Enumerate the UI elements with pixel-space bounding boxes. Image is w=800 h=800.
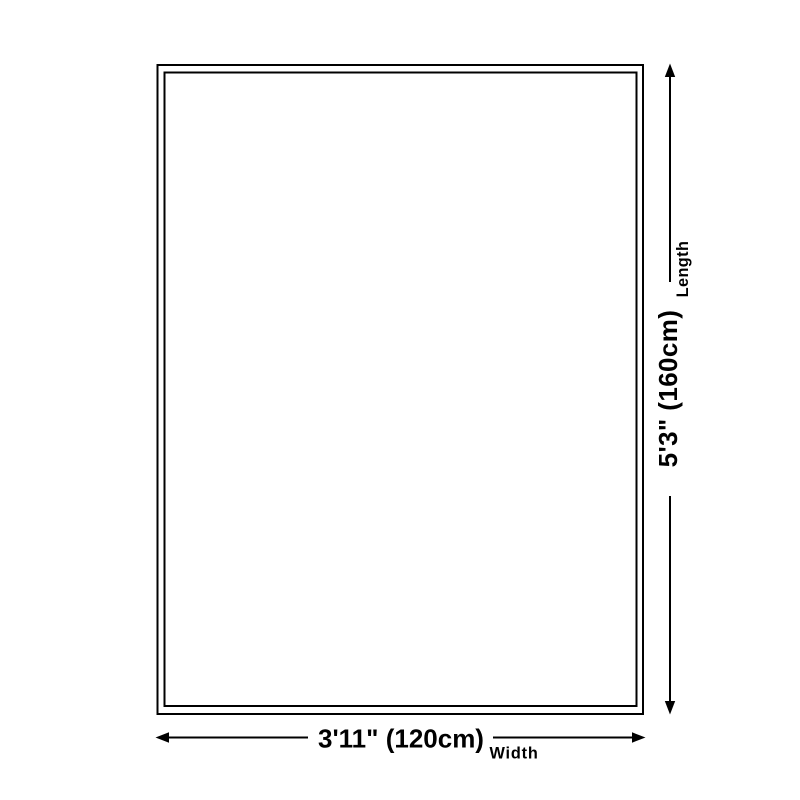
svg-text:3'11" (120cm): 3'11" (120cm) — [318, 724, 484, 754]
svg-text:5'3" (160cm): 5'3" (160cm) — [653, 310, 683, 468]
svg-text:Width: Width — [490, 745, 539, 763]
svg-text:Length: Length — [674, 241, 692, 298]
